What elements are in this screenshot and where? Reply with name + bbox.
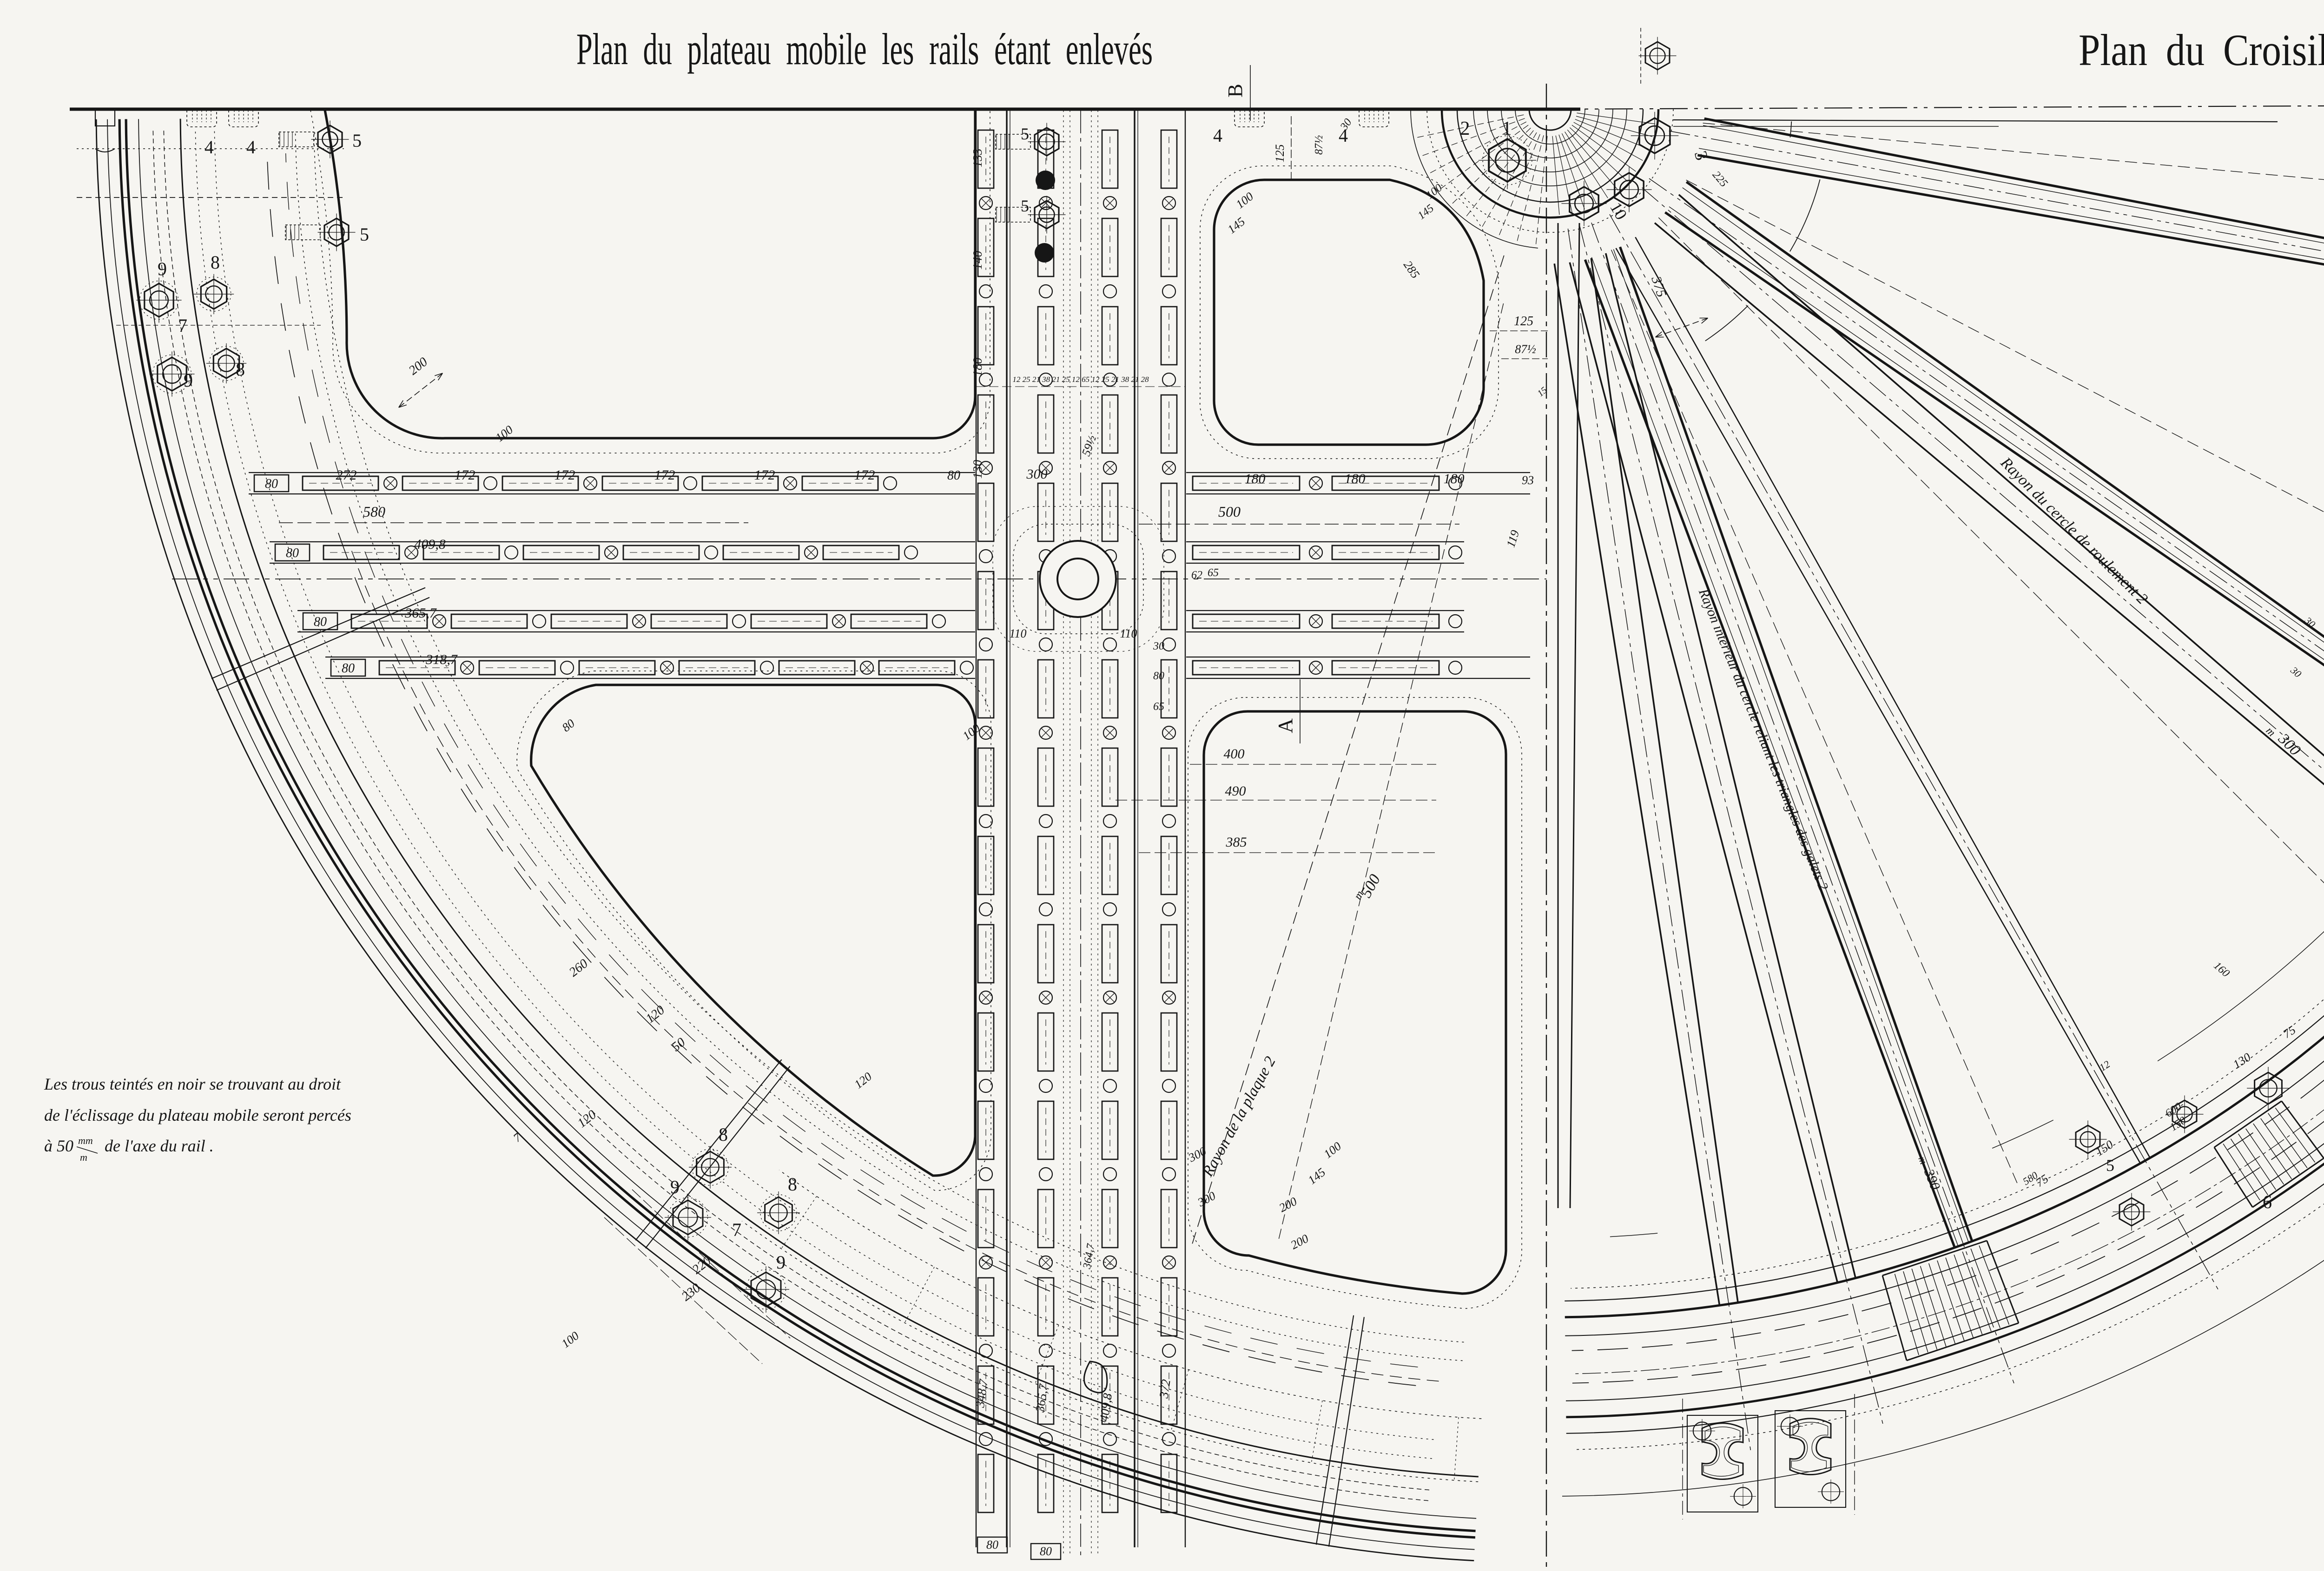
- svg-text:180: 180: [1245, 471, 1266, 486]
- svg-text:62: 62: [1191, 569, 1202, 581]
- svg-text:4: 4: [205, 137, 214, 158]
- svg-text:5: 5: [360, 224, 369, 245]
- svg-text:Les trous teintés en noir se t: Les trous teintés en noir se trouvant au…: [44, 1075, 341, 1093]
- svg-text:580: 580: [363, 503, 385, 520]
- svg-text:80: 80: [265, 477, 278, 491]
- svg-text:8: 8: [211, 252, 220, 273]
- svg-text:80: 80: [314, 615, 327, 629]
- svg-text:1: 1: [1502, 118, 1512, 139]
- svg-text:5: 5: [1021, 197, 1029, 215]
- svg-text:500: 500: [1218, 503, 1241, 520]
- svg-text:87½: 87½: [1313, 135, 1325, 155]
- svg-text:80: 80: [286, 546, 299, 560]
- svg-text:12 25 21 38 21 25 12 65 12: 12 25 21 38 21 25 12 65 12 25 21 38 21 2…: [1012, 375, 1149, 384]
- svg-text:de l'éclissage du plateau mobi: de l'éclissage du plateau mobile seront …: [44, 1106, 351, 1124]
- svg-text:110: 110: [1009, 627, 1026, 640]
- svg-text:172: 172: [555, 467, 575, 483]
- svg-text:180: 180: [1345, 471, 1366, 486]
- svg-text:130: 130: [971, 460, 984, 479]
- svg-text:172: 172: [854, 467, 875, 483]
- svg-text:9: 9: [184, 370, 193, 391]
- svg-text:180: 180: [971, 357, 984, 376]
- svg-text:409,8: 409,8: [414, 537, 446, 552]
- svg-text:5: 5: [1021, 125, 1029, 143]
- svg-text:4: 4: [246, 137, 256, 158]
- svg-text:172: 172: [654, 467, 675, 483]
- svg-text:93: 93: [1522, 473, 1534, 487]
- svg-text:7: 7: [732, 1219, 741, 1240]
- svg-text:133: 133: [971, 149, 984, 168]
- svg-text:80: 80: [1153, 670, 1164, 682]
- svg-text:140: 140: [971, 250, 984, 270]
- svg-text:B: B: [1224, 84, 1247, 97]
- svg-text:490: 490: [1225, 783, 1246, 799]
- svg-text:m: m: [80, 1151, 87, 1163]
- svg-text:8: 8: [788, 1174, 797, 1195]
- svg-text:80: 80: [342, 661, 355, 676]
- svg-text:de l'axe du rail .: de l'axe du rail .: [105, 1137, 214, 1155]
- svg-text:5: 5: [2106, 1156, 2114, 1175]
- svg-text:4: 4: [1213, 125, 1222, 146]
- svg-text:9: 9: [670, 1177, 680, 1197]
- svg-text:65: 65: [1208, 567, 1219, 579]
- svg-text:65: 65: [1153, 701, 1164, 713]
- svg-text:372: 372: [1156, 1379, 1173, 1400]
- svg-text:272: 272: [336, 467, 357, 483]
- svg-text:6: 6: [2263, 1191, 2272, 1212]
- svg-text:Plan du plateau mobile les rai: Plan du plateau mobile les rails étant e…: [576, 24, 1153, 74]
- svg-text:172: 172: [754, 467, 775, 483]
- svg-text:172: 172: [455, 467, 475, 483]
- svg-text:mm: mm: [78, 1135, 93, 1146]
- svg-text:80: 80: [1040, 1545, 1052, 1558]
- svg-text:125: 125: [1514, 314, 1533, 329]
- svg-text:A: A: [1274, 718, 1297, 733]
- svg-text:8: 8: [719, 1124, 728, 1145]
- svg-text:9: 9: [158, 258, 167, 279]
- svg-text:87½: 87½: [1515, 342, 1536, 356]
- svg-text:385: 385: [1226, 835, 1247, 850]
- svg-text:5: 5: [352, 130, 362, 151]
- svg-text:80: 80: [947, 468, 960, 483]
- svg-text:400: 400: [1224, 746, 1245, 762]
- svg-text:125: 125: [1273, 145, 1287, 163]
- svg-text:à 50: à 50: [44, 1137, 73, 1155]
- svg-text:Plan du Croisillon: Plan du Croisillon: [2079, 25, 2324, 75]
- svg-text:9: 9: [776, 1252, 786, 1273]
- svg-text:30: 30: [1153, 640, 1164, 652]
- svg-text:318,7: 318,7: [425, 652, 458, 667]
- svg-text:80: 80: [986, 1538, 998, 1551]
- svg-text:365,7: 365,7: [404, 605, 437, 621]
